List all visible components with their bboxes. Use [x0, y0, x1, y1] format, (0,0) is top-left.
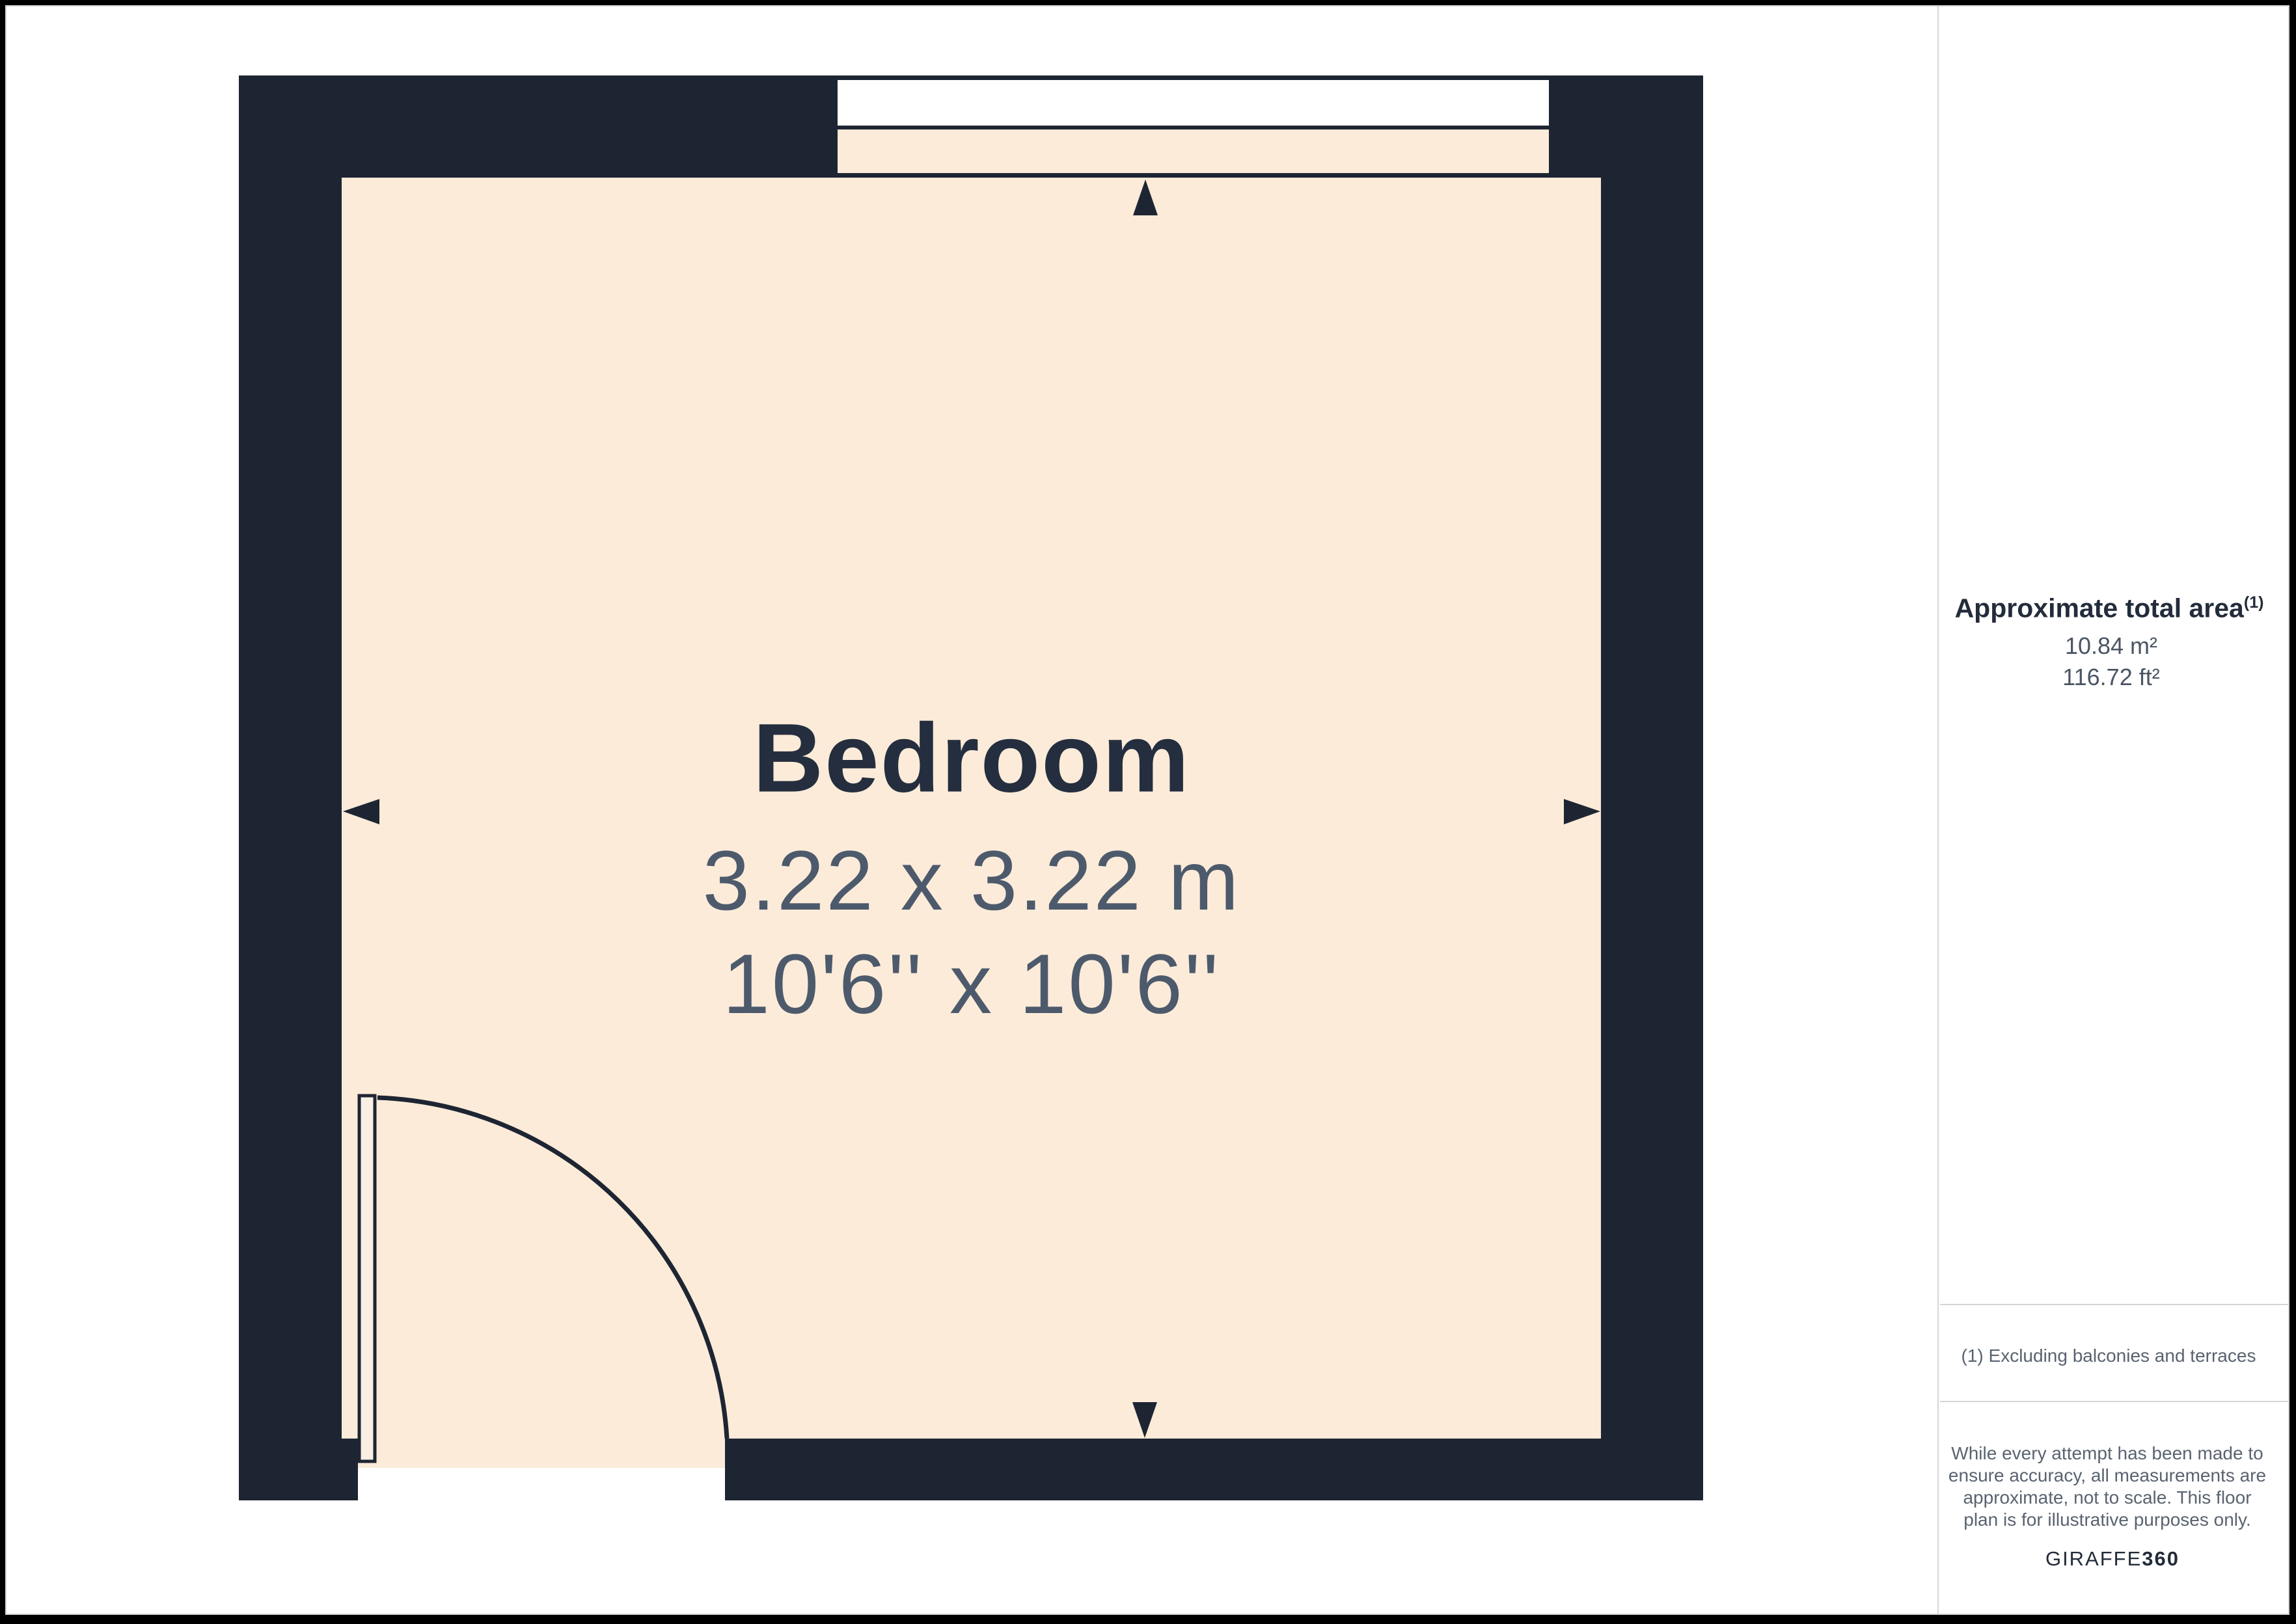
wall-top-right-segment	[1549, 75, 1703, 178]
giraffe360-logo-suffix: 360	[2142, 1547, 2180, 1570]
image-border-left	[0, 0, 5, 1624]
footnote-excluding-balconies: (1) Excluding balconies and terraces	[1961, 1346, 2256, 1366]
wall-bottom-left-corner	[239, 1439, 358, 1500]
wall-right	[1601, 178, 1703, 1500]
approximate-area-footnote-marker: (1)	[2244, 593, 2264, 612]
window-inner-frame-line	[838, 173, 1549, 178]
approximate-area-heading-text: Approximate total area	[1955, 593, 2244, 623]
sidebar-divider-upper	[1940, 1304, 2289, 1305]
window-outer-frame-line	[838, 75, 1549, 80]
disclaimer-line: While every attempt has been made to	[1948, 1442, 2266, 1465]
room-dimensions-imperial: 10'6'' x 10'6''	[723, 935, 1221, 1033]
window-sill	[838, 129, 1549, 173]
giraffe360-logo-name: GIRAFFE	[2045, 1547, 2142, 1570]
window-mid-frame-line	[838, 126, 1549, 129]
disclaimer-line: ensure accuracy, all measurements are	[1948, 1465, 2266, 1487]
sidebar-divider-lower	[1940, 1401, 2289, 1402]
room-name-label: Bedroom	[753, 702, 1190, 815]
door-leaf	[359, 1096, 375, 1461]
disclaimer-line: plan is for illustrative purposes only.	[1948, 1509, 2266, 1531]
image-border-bottom	[0, 1615, 2296, 1624]
window-glass	[838, 80, 1549, 126]
area-square-meters: 10.84 m²	[2065, 632, 2157, 660]
area-square-feet: 116.72 ft²	[2062, 664, 2159, 691]
image-border-top	[0, 0, 2296, 5]
door-threshold	[358, 1439, 725, 1468]
wall-bottom-right-segment	[725, 1439, 1601, 1500]
image-border-right	[2289, 0, 2296, 1624]
approximate-area-heading: Approximate total area(1)	[1955, 593, 2264, 624]
wall-left	[239, 178, 342, 1439]
wall-top-left-segment	[239, 75, 838, 178]
sidebar-left-divider	[1937, 7, 1939, 1615]
disclaimer-paragraph: While every attempt has been made to ens…	[1948, 1442, 2266, 1531]
giraffe360-logo: GIRAFFE360	[2045, 1547, 2180, 1571]
floorplan-page: Bedroom 3.22 x 3.22 m 10'6'' x 10'6'' Ap…	[0, 0, 2296, 1624]
disclaimer-line: approximate, not to scale. This floor	[1948, 1487, 2266, 1509]
room-dimensions-metric: 3.22 x 3.22 m	[703, 832, 1241, 929]
